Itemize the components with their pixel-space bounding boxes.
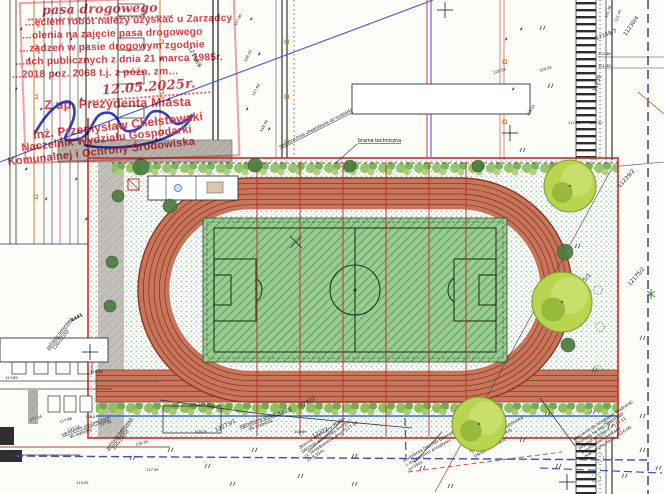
pitch-center-dot [354, 289, 356, 291]
official-stamp: pasa drogowego …ęciem robót należy uzysk… [0, 0, 282, 193]
garage-tooth [48, 396, 60, 412]
garage-tooth [64, 396, 76, 412]
spot-elevation: 120.36 [598, 52, 611, 56]
gate-label: brama techniczna [358, 138, 401, 144]
bush-symbol [557, 244, 573, 260]
spot-elevation: 117.69 [5, 376, 18, 380]
vegetation-code-label: Bz [604, 420, 609, 425]
spot-elevation: 118.29 [194, 430, 207, 434]
tree-trunk [561, 301, 563, 303]
hedge-strip-bottom [96, 403, 618, 415]
bush-symbol [163, 199, 177, 213]
vegetation-code-label: Bz [590, 156, 595, 161]
bush-symbol [472, 160, 484, 172]
tree-symbol [532, 272, 592, 332]
spot-elevation: 119.36 [90, 370, 103, 374]
tree-trunk [478, 423, 480, 425]
bush-symbol [344, 160, 356, 172]
tree-symbol [544, 160, 596, 212]
bush-symbol [112, 190, 124, 202]
football-pitch [203, 218, 507, 362]
spot-elevation: 121.36 [598, 64, 611, 68]
spot-elevation: 118.69 [294, 430, 307, 434]
bush-symbol [106, 256, 118, 268]
spot-elevation: 117.90 [590, 121, 603, 125]
spot-elevation: 117.39 [146, 468, 159, 472]
spot-elevation: 119.05 [76, 481, 89, 485]
scanned-site-plan-page: brama techniczna nawierzchnia utwardzona… [0, 0, 664, 494]
bush-symbol [561, 338, 575, 352]
spot-elevation: 118.14 [198, 402, 211, 406]
garage-tooth [80, 396, 92, 412]
spot-elevation: 117.94 [568, 121, 581, 125]
building-dark [0, 427, 14, 445]
bush-symbol [104, 300, 116, 312]
building-outline-north [352, 84, 530, 114]
tree-trunk [569, 185, 571, 187]
spot-elevation: 118.0 [85, 415, 96, 419]
tree-symbol [452, 397, 506, 451]
